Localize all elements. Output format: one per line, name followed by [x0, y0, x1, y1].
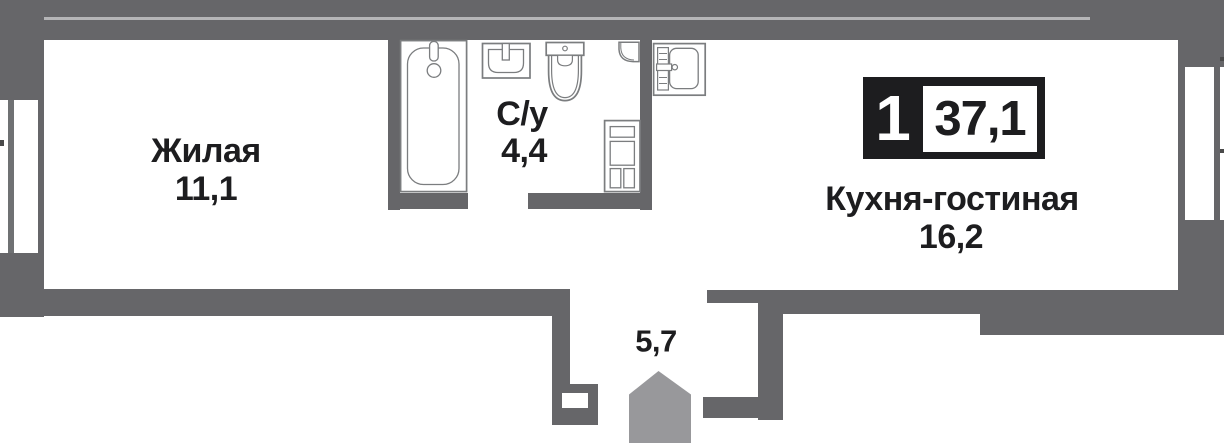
room-area-bathroom: 4,4 — [501, 134, 547, 168]
storage-cabinet-icon — [605, 121, 640, 192]
kitchen-sink-icon — [654, 44, 706, 96]
entrance-marker-icon — [629, 371, 691, 443]
toilet-icon — [546, 43, 584, 101]
room-label-living: Жилая — [151, 134, 260, 168]
fixtures-layer — [0, 0, 1224, 443]
badge-rooms-count: 1 — [863, 77, 923, 159]
apartment-badge: 1 37,1 — [863, 77, 1045, 159]
room-area-living: 11,1 — [175, 172, 237, 206]
door-swing-icon — [619, 42, 639, 61]
room-area-kitchen: 16,2 — [919, 220, 983, 254]
washbasin-icon — [483, 44, 531, 79]
floor-plan: Жилая 11,1 С/у 4,4 Кухня-гостиная 16,2 5… — [0, 0, 1224, 443]
bathtub-icon — [401, 41, 467, 192]
room-label-kitchen: Кухня-гостиная — [825, 182, 1078, 216]
badge-total-area: 37,1 — [923, 86, 1037, 152]
room-area-hallway: 5,7 — [635, 326, 677, 357]
room-label-bathroom: С/у — [496, 97, 547, 131]
